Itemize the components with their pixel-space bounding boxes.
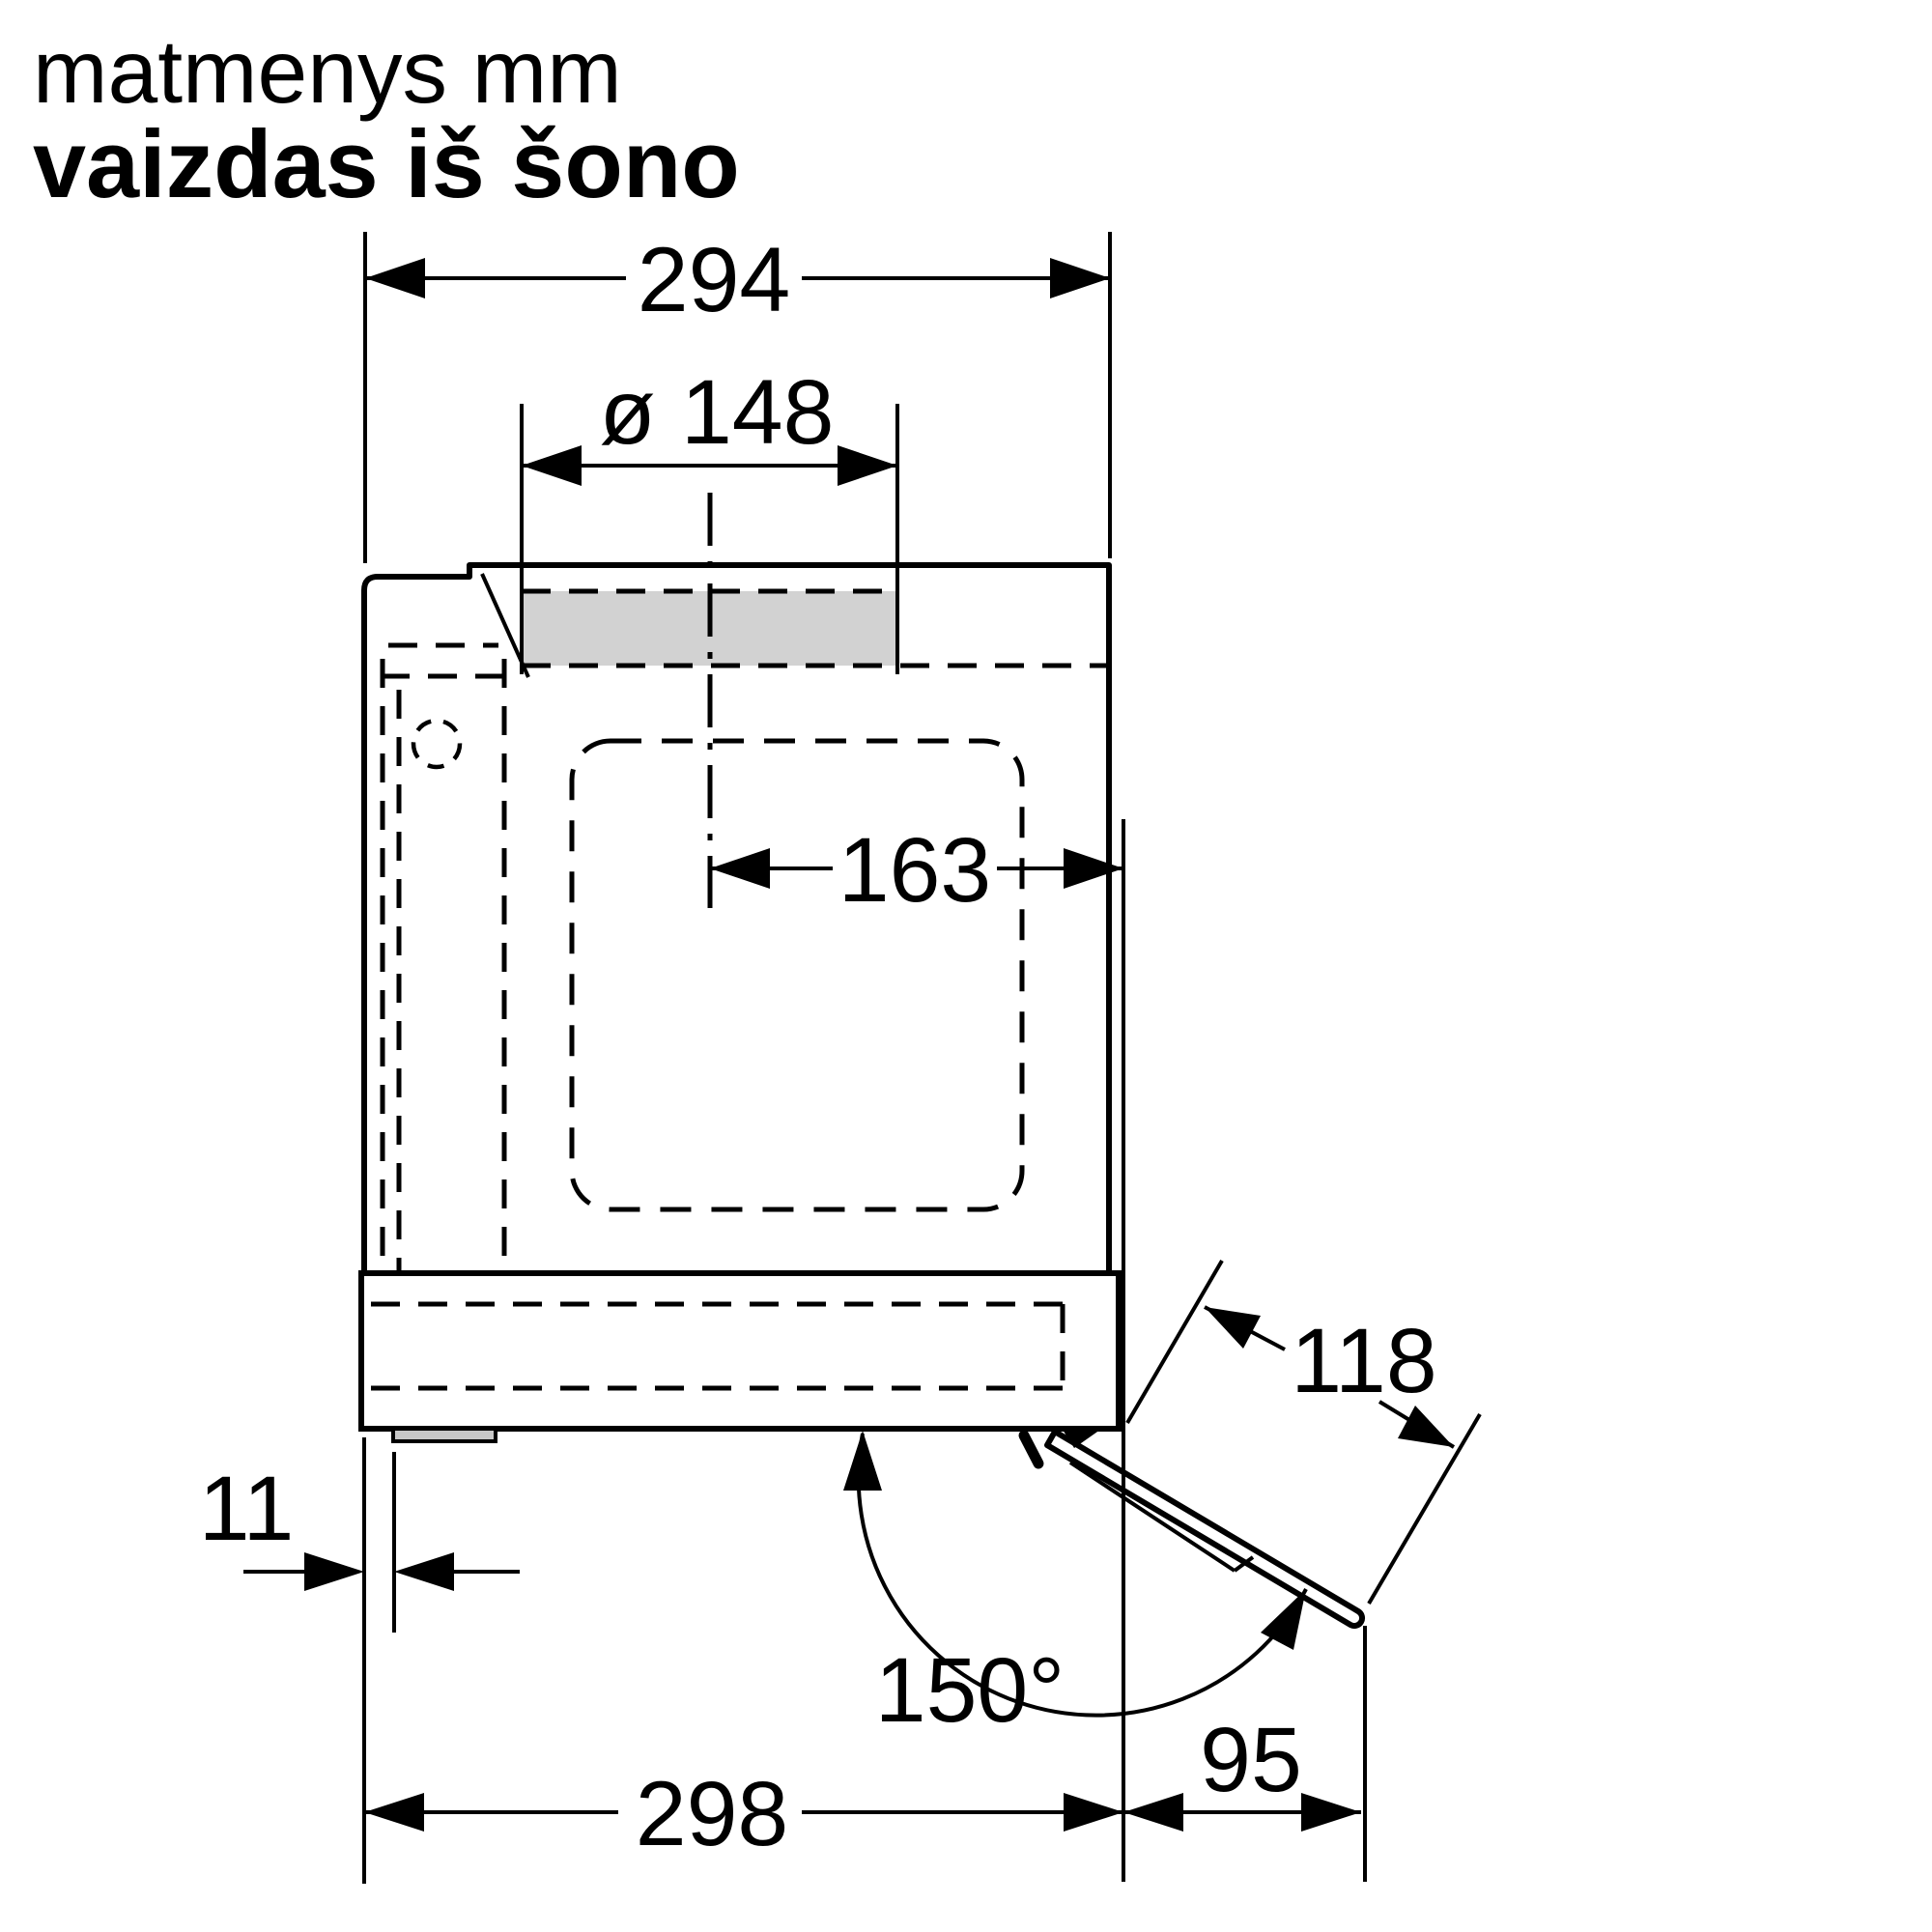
dim-298: 298 — [364, 1763, 1123, 1865]
dim-118-label: 118 — [1291, 1310, 1436, 1412]
visor-flap-panel — [1047, 1432, 1362, 1626]
technical-drawing: matmenys mm vaizdas iš šono 29 — [0, 0, 1932, 1932]
dim-118-arrow-left — [1205, 1307, 1261, 1349]
dim-294-label: 294 — [638, 229, 791, 331]
base-outline — [361, 1273, 1119, 1429]
angle-150-label: 150° — [875, 1639, 1065, 1742]
dim-118-ext-hinge — [1127, 1261, 1222, 1423]
dim-148-arrow-right — [838, 445, 897, 486]
dim-11-arrow-left — [304, 1552, 364, 1591]
visor-flap — [1024, 1430, 1362, 1626]
mounting-hole-dashed — [413, 721, 460, 767]
hidden-details — [371, 645, 1063, 1388]
dim-95-arrow-right — [1301, 1793, 1361, 1832]
drawing-titles: matmenys mm vaizdas iš šono — [33, 21, 740, 217]
dim-294-arrow-left — [365, 258, 425, 298]
foot — [393, 1429, 496, 1441]
dim-95-arrow-left — [1123, 1793, 1183, 1832]
vent-cutout — [522, 591, 1109, 666]
dim-118: 118 — [1127, 1261, 1480, 1604]
dim-294-arrow-right — [1050, 258, 1110, 298]
dim-298-arrow-right — [1064, 1793, 1123, 1832]
dim-298-label: 298 — [636, 1763, 789, 1865]
dim-11-label: 11 — [199, 1458, 295, 1560]
angle-150: 150° — [843, 1431, 1306, 1742]
dim-148-arrow-left — [522, 445, 582, 486]
dim-118-ext-tip — [1369, 1414, 1480, 1604]
hood-body — [361, 565, 1119, 1441]
visor-inner-edge — [1070, 1463, 1235, 1571]
dim-11-arrow-right — [394, 1552, 454, 1591]
dim-298-arrow-left — [364, 1793, 424, 1832]
dim-163-label: 163 — [838, 819, 992, 922]
title-view: vaizdas iš šono — [33, 110, 740, 217]
dim-11: 11 — [199, 1437, 520, 1884]
dim-148-label: ø 148 — [600, 361, 835, 464]
drawing-canvas: matmenys mm vaizdas iš šono 29 — [0, 0, 1932, 1932]
dim-163-arrow-left — [710, 848, 770, 889]
dim-95-label: 95 — [1200, 1709, 1302, 1811]
title-units: matmenys mm — [33, 21, 622, 122]
angle-arrow-closed-position — [843, 1431, 882, 1491]
visor-hinge-cap — [1024, 1435, 1038, 1463]
body-outline — [364, 565, 1109, 1273]
dim-163-arrow-right — [1064, 848, 1123, 889]
motor-housing-dashed — [572, 741, 1022, 1209]
